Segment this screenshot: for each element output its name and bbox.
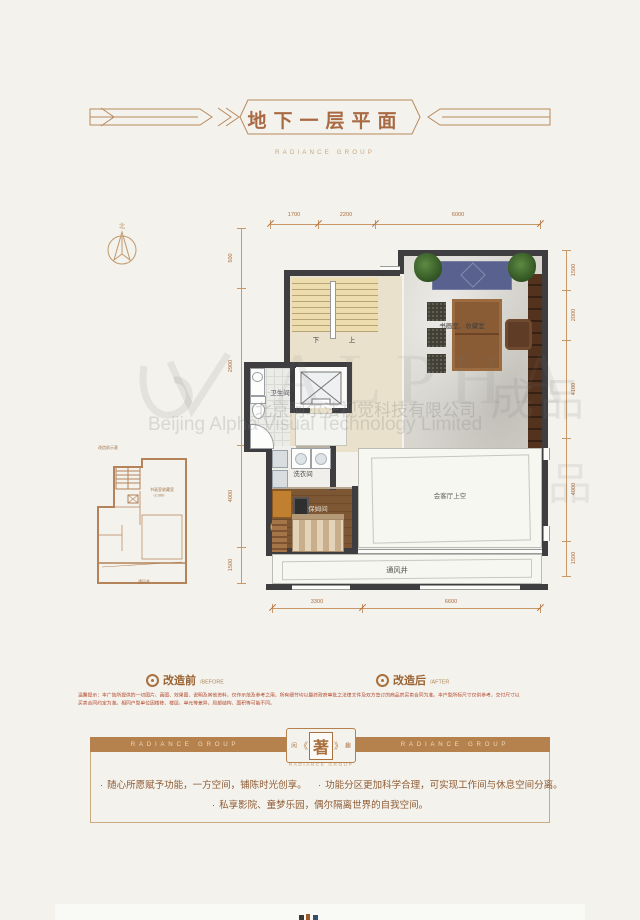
wall	[542, 250, 548, 556]
slat-bench	[272, 520, 287, 552]
wall	[347, 362, 352, 413]
dimension-tick	[562, 340, 571, 341]
window	[292, 585, 350, 590]
feature-bullet: · 随心所愿赋予功能，一方空间，铺陈时光创享。	[100, 777, 307, 791]
wall	[284, 270, 290, 368]
dim-left-4: 1500	[227, 550, 233, 581]
disclaimer-line: 温馨提示：本广告所提供的一切图片、画图、效果图、说明及其他资料，仅作示范及参考之…	[78, 693, 372, 698]
page-mark	[299, 915, 304, 920]
room-label-study: 书画室、收藏室	[426, 321, 498, 330]
seal-left-char: 闲	[291, 742, 297, 750]
seal-chevron-right: 》	[334, 739, 343, 752]
plant-icon	[414, 253, 442, 282]
dim-right-2: 2000	[570, 300, 576, 331]
desk-divider	[455, 333, 499, 335]
room-label-laundry: 洗衣间	[285, 469, 321, 478]
wardrobe	[272, 490, 292, 518]
dimension-line-top	[270, 224, 540, 225]
header-subtitle: RADIANCE GROUP	[260, 149, 390, 156]
room-label-void: 会客厅上空	[414, 491, 486, 500]
dimension-tick	[562, 576, 571, 577]
compass-icon	[102, 228, 142, 268]
chair	[427, 302, 446, 321]
washer	[291, 448, 311, 469]
window	[543, 526, 550, 541]
room-label-bathroom: 卫生间	[262, 388, 298, 397]
stair-handrail	[330, 281, 336, 339]
page-mark	[306, 914, 310, 920]
armchair	[505, 319, 532, 350]
bullet-dot: ·	[212, 800, 215, 811]
bullet-text: 私享影院、童梦乐园，偶尔隔离世界的自我空间。	[219, 797, 428, 811]
stair-down-label: 下	[309, 335, 323, 344]
desk	[452, 299, 502, 371]
feature-bullet: · 私享影院、童梦乐园，偶尔隔离世界的自我空间。	[90, 797, 550, 811]
watermark-logo-mark	[130, 348, 235, 433]
inset-level-label: -2.000	[153, 493, 164, 498]
dim-bottom-1: 3300	[302, 598, 333, 604]
dim-right-4: 4000	[570, 474, 576, 505]
floor-vestibule	[295, 413, 347, 446]
appliance	[272, 450, 288, 468]
legend-before-en: /BEFORE	[200, 678, 224, 684]
wall	[332, 408, 352, 413]
bottom-band	[55, 904, 585, 920]
legend-after-icon	[376, 674, 389, 687]
bullet-dot: ·	[100, 780, 103, 791]
legend-before-icon	[146, 674, 159, 687]
room-label-maid: 保姆间	[300, 504, 336, 513]
dim-top-1: 1700	[279, 211, 310, 217]
banner-group-left: RADIANCE GROUP	[132, 741, 237, 748]
brand-seal: 闲 《 著 》 趣	[286, 728, 356, 763]
washer	[311, 448, 331, 469]
chair	[427, 328, 446, 347]
dim-top-3: 6000	[443, 211, 474, 217]
legend-before: 改造前 /BEFORE	[146, 672, 235, 688]
dimension-line-bottom	[272, 608, 540, 609]
legend-after-en: /AFTER	[430, 678, 449, 684]
legend-after-label: 改造后	[393, 672, 426, 688]
banner-group-right: RADIANCE GROUP	[402, 741, 507, 748]
dim-left-1: 500	[227, 243, 233, 274]
page-mark	[313, 915, 318, 920]
inset-caption: 改造前示意	[98, 445, 118, 451]
inset-room-label: 书画室收藏室	[150, 487, 174, 493]
dim-right-3: 4100	[570, 374, 576, 405]
legend-after: 改造后 /AFTER	[376, 672, 458, 688]
inset-before-plan	[92, 455, 192, 595]
wall	[352, 486, 358, 554]
seal-right-char: 趣	[345, 742, 351, 750]
wall	[290, 408, 310, 413]
bullet-text: 随心所愿赋予功能，一方空间，铺陈时光创享。	[107, 777, 307, 791]
wall	[290, 362, 352, 367]
page-title: 地下一层平面	[233, 106, 418, 133]
brand-sub-label: RADIANCE GROUP	[289, 762, 351, 767]
window	[420, 585, 520, 590]
dim-bottom-2: 6600	[436, 598, 467, 604]
dimension-line-right	[566, 250, 567, 576]
dim-top-2: 2200	[331, 211, 362, 217]
sink	[252, 372, 263, 382]
wall	[284, 270, 400, 276]
dim-left-2: 2900	[227, 351, 233, 382]
window	[358, 549, 542, 554]
washer-door	[295, 453, 307, 465]
chair	[427, 354, 446, 373]
seal-center-char: 著	[309, 732, 333, 760]
bullet-text: 功能分区更加科学合理，可实现工作间与休息空间分离。	[325, 777, 563, 791]
dim-left-3: 4000	[227, 481, 233, 512]
disclaimer-line: 买卖合同约定为准。相同户型单位因楼栋、楼层、单元等差异，局部结构、面积等可能不同…	[78, 701, 372, 706]
legend-before-label: 改造前	[163, 672, 196, 688]
cabinet-wall-strip	[528, 274, 542, 450]
bullet-dot: ·	[318, 780, 321, 791]
bed	[292, 519, 344, 552]
seal-chevron-left: 《	[299, 739, 308, 752]
elevator-shaft-icon	[300, 371, 342, 405]
window	[543, 448, 550, 460]
dimension-line-left	[241, 228, 242, 583]
washer-door	[315, 453, 327, 465]
dimension-tick	[562, 438, 571, 439]
dimension-tick	[237, 547, 246, 548]
dimension-tick	[562, 250, 571, 251]
stair-up-label: 上	[345, 335, 359, 344]
dim-right-5: 1500	[570, 543, 576, 574]
brochure-page: 地下一层平面 RADIANCE GROUP 北 1700 2200 6000 3…	[0, 0, 640, 920]
dimension-tick	[237, 288, 246, 289]
feature-bullet: · 功能分区更加科学合理，可实现工作间与休息空间分离。	[318, 777, 563, 791]
dimension-tick	[562, 290, 571, 291]
room-label-vent: 通风井	[361, 564, 433, 575]
dimension-tick	[237, 228, 246, 229]
inset-vent-label: 通风井	[138, 579, 150, 585]
dimension-tick	[237, 583, 246, 584]
dim-right-1: 1500	[570, 255, 576, 286]
